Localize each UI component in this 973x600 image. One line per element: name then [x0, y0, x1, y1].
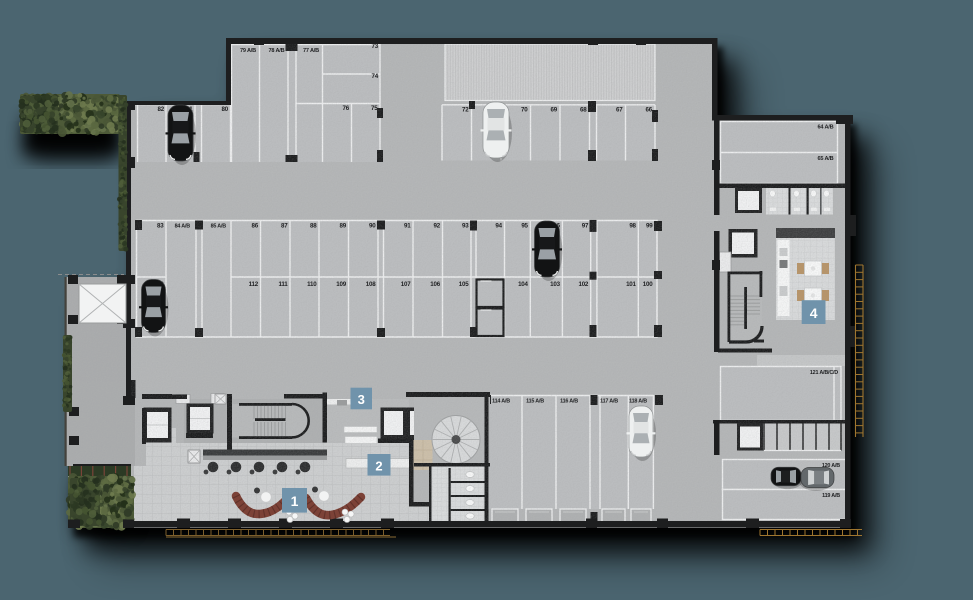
svg-text:1: 1 — [291, 493, 299, 509]
svg-text:2: 2 — [375, 459, 382, 474]
svg-text:3: 3 — [358, 392, 365, 407]
svg-text:4: 4 — [810, 305, 818, 321]
